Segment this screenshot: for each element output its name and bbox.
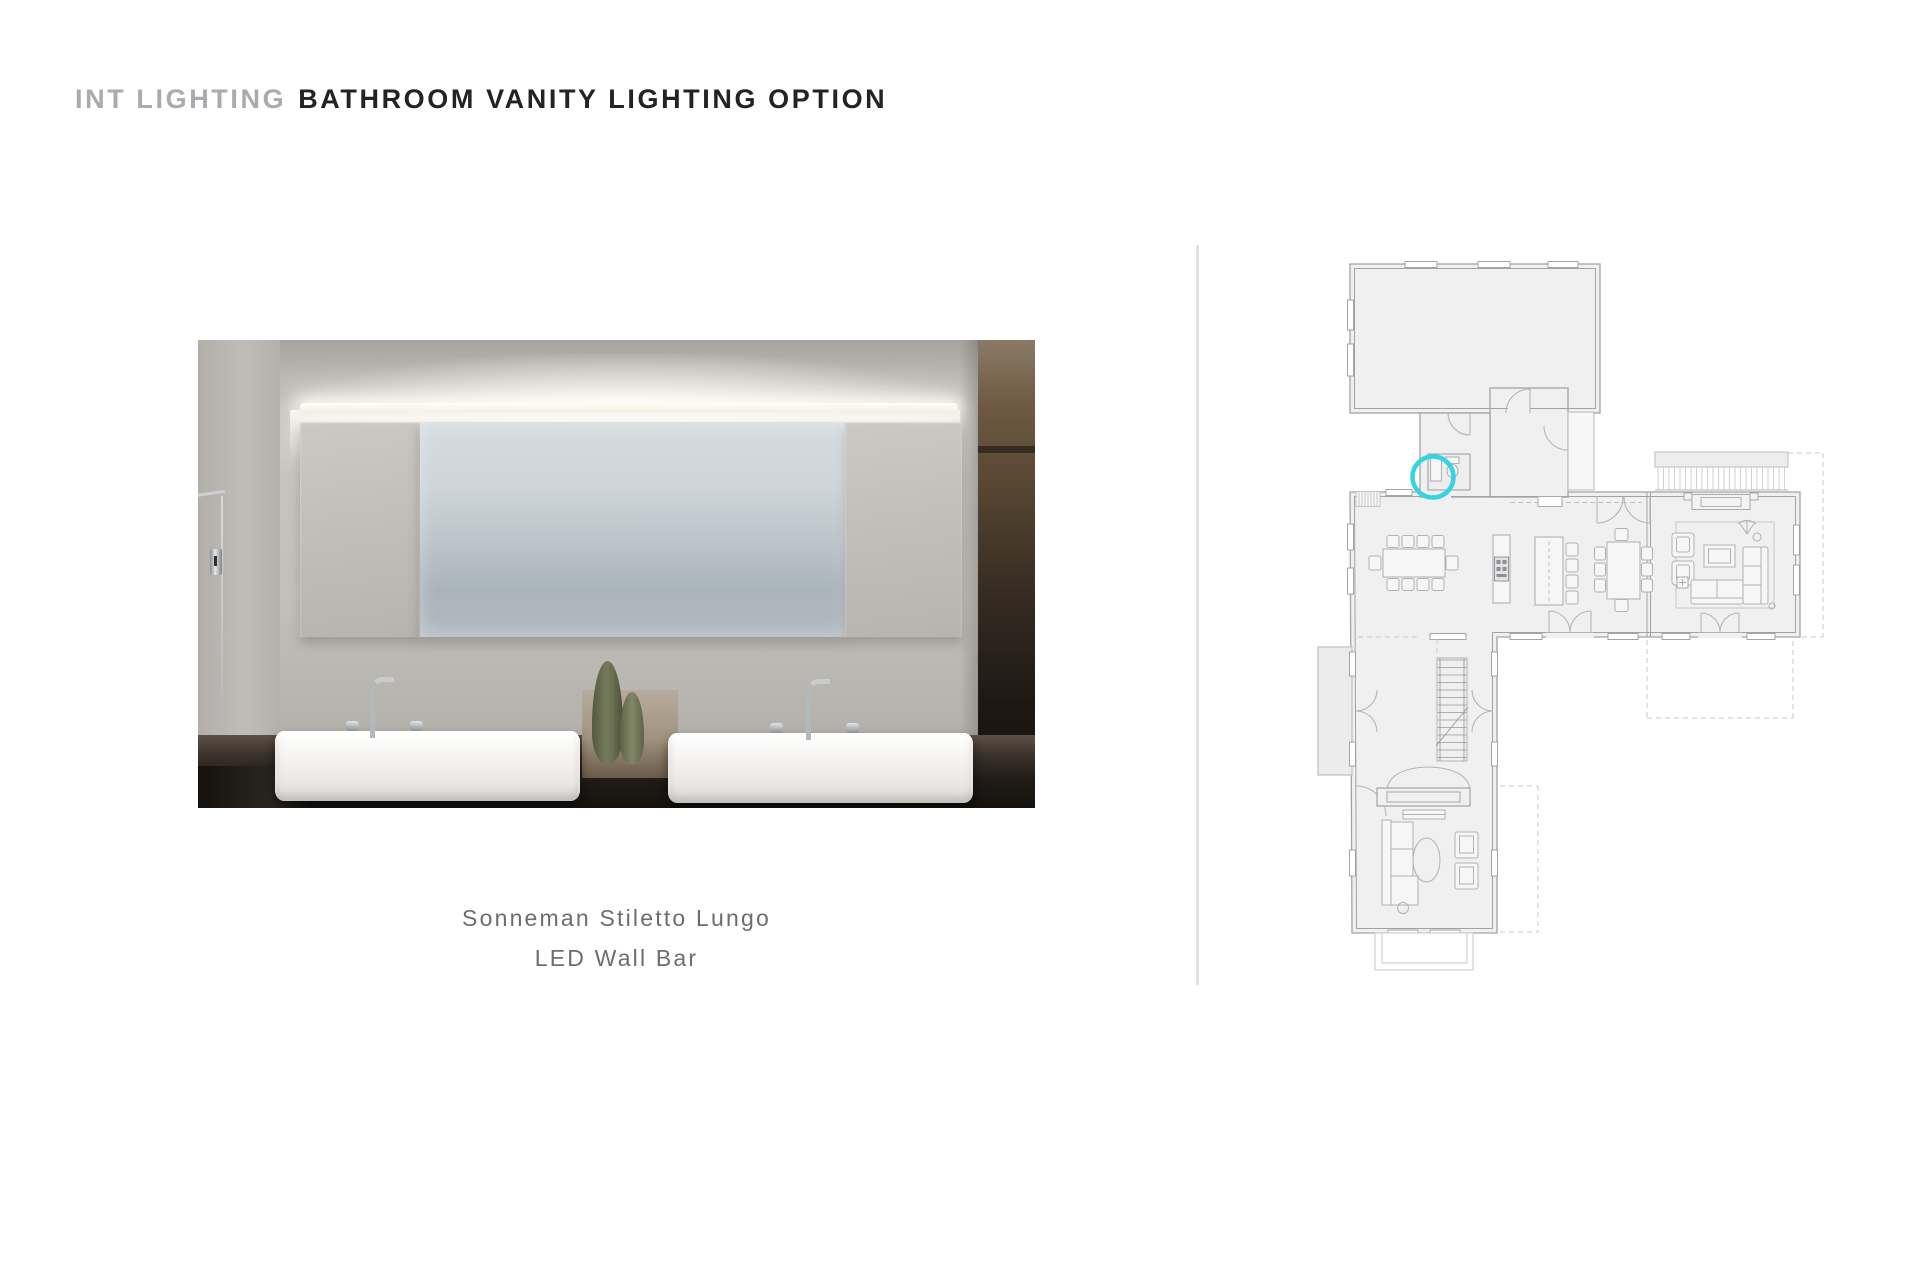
caption-line2: LED Wall Bar [198,938,1035,978]
page-title-prefix: INT LIGHTING [75,84,286,114]
cabinet-shelf-line [978,446,1035,453]
deck [1655,452,1788,490]
green-vase-tall [592,661,623,763]
page-title: INT LIGHTINGBATHROOM VANITY LIGHTING OPT… [75,84,887,115]
slide: { "header": { "prefix": "INT LIGHTING", … [0,0,1920,1280]
frosted-mirror [420,422,845,637]
marble-panel-left [300,422,420,637]
led-wall-bar-icon [300,403,958,412]
left-faucet-handle-icon [346,721,359,731]
left-vessel-sink [275,731,580,801]
page-title-main: BATHROOM VANITY LIGHTING OPTION [298,84,887,114]
glass-door-lock-icon [210,549,222,575]
entry-steps-hatch [1356,492,1380,507]
floor-plan [1310,240,1870,985]
vanity-photo [198,340,1035,808]
glass-door-edge [221,496,223,762]
left-faucet-handle-icon [410,721,423,731]
front-porch [1375,933,1473,970]
caption-line1: Sonneman Stiletto Lungo [198,898,1035,938]
right-faucet-handle-icon [770,723,783,733]
section-divider [1196,245,1199,985]
left-faucet-spout-icon [370,677,394,738]
photo-caption: Sonneman Stiletto Lungo LED Wall Bar [198,898,1035,978]
right-faucet-handle-icon [846,723,859,733]
entry-vestibule [1377,788,1470,806]
right-vessel-sink [668,733,973,803]
marble-panel-right [845,422,962,637]
powder-room [1428,454,1470,490]
right-faucet-spout-icon [806,679,830,740]
